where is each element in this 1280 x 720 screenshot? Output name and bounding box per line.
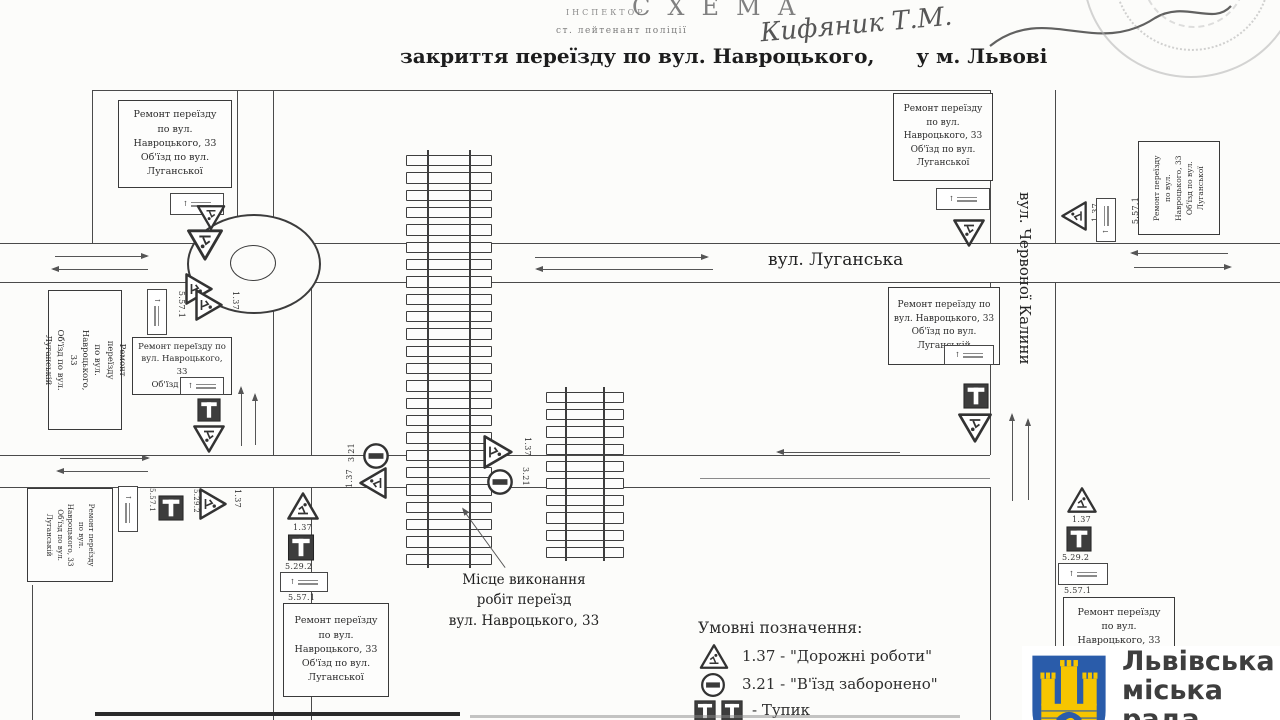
sign-dead-end-icon [196, 398, 222, 422]
railroad-sleeper [406, 554, 492, 565]
sign-info-icon: ↑ [280, 572, 328, 592]
direction-arrow [1012, 415, 1013, 501]
lviv-coat-of-arms-icon [1028, 652, 1110, 720]
direction-arrow [255, 395, 256, 445]
legend-item: 3.21 - "В'їзд заборонено" [742, 675, 938, 693]
sign-road-works-icon [194, 288, 224, 322]
railroad-sleeper [406, 172, 492, 183]
railroad-sleeper [546, 426, 624, 437]
sign-code-label: 1.37 [345, 469, 354, 488]
sign-code-label: 5.57.1 [1131, 197, 1140, 224]
direction-arrow [241, 388, 242, 446]
logo-text: Львівська міська рада [1122, 648, 1275, 720]
detour-notice-box: Ремонт переїзду по вул. Навроцького, 33 … [893, 93, 993, 181]
sign-info-icon: ↑ [1096, 198, 1116, 242]
street-label-luhanska: вул. Луганська [768, 250, 903, 270]
direction-arrow [778, 452, 900, 453]
sign-road-works-icon [699, 643, 729, 670]
railroad-sleeper [406, 190, 492, 201]
railroad-sleeper [406, 502, 492, 513]
railroad-sleeper [406, 328, 492, 339]
direction-arrow [60, 458, 148, 459]
direction-arrow [1028, 420, 1029, 500]
scanned-traffic-scheme: ІНСПЕКТОР СХЕМА ст. лейтенант поліції Ки… [0, 0, 1280, 720]
railroad-sleeper [406, 259, 492, 270]
worksite-callout: Місце виконання робіт переїзд вул. Навро… [428, 570, 620, 631]
sign-road-works-icon [358, 466, 388, 500]
sign-info-icon: ↑ [180, 377, 224, 395]
railroad-sleeper [406, 432, 492, 443]
direction-arrow [1132, 253, 1228, 254]
logo-line: Львівська [1122, 648, 1275, 677]
railroad-sleeper [406, 363, 492, 374]
railroad-sleeper [406, 415, 492, 426]
railroad-sleeper [406, 450, 492, 461]
railroad-sleeper [546, 495, 624, 506]
sign-code-label: 5.57.1 [148, 488, 156, 512]
railroad-sleeper [546, 444, 624, 455]
sign-road-works-icon [186, 228, 224, 262]
road-edge-line [311, 282, 312, 455]
railroad-sleeper [546, 461, 624, 472]
sign-code-label: 1.37 [1072, 515, 1091, 524]
sign-road-works-icon [482, 434, 514, 470]
up-arrow: ↑ [290, 578, 296, 586]
sign-code-label: 3.21 [347, 443, 356, 462]
logo-line: рада [1122, 706, 1275, 720]
road-edge-line [92, 90, 990, 91]
railroad-sleeper [406, 207, 492, 218]
up-arrow: ↑ [949, 195, 955, 203]
legend-title: Умовні позначення: [698, 619, 862, 637]
railroad-sleeper [406, 242, 492, 253]
road-edge-line [990, 487, 991, 720]
sign-road-works-icon [286, 491, 320, 521]
sign-code-label: 5.29.2 [285, 562, 312, 571]
railroad-sleeper [406, 346, 492, 357]
railroad-sleeper [546, 547, 624, 558]
sign-road-works-icon [196, 204, 226, 231]
sign-dead-end-icon [286, 534, 316, 561]
detour-notice-box: Ремонт переїзду по вул. Навроцького, 33 … [27, 488, 113, 582]
up-arrow: ↑ [1069, 570, 1075, 578]
sign-info-icon: ↑ [1058, 563, 1108, 585]
railroad-sleeper [406, 311, 492, 322]
lviv-city-council-logo: Львівська міська рада [1022, 646, 1280, 720]
detour-notice-text: Ремонт переїзду по вул. Навроцького, 33 … [1152, 150, 1206, 226]
railroad-track-main [406, 153, 492, 565]
railroad-sleeper [406, 224, 492, 235]
detour-notice-box: Ремонт переїзду по вул. Навроцького, 33 … [283, 603, 389, 697]
detour-notice-box: Ремонт переїзду по вул. Навроцького, 33 … [48, 290, 122, 430]
up-arrow: ↑ [153, 298, 161, 304]
railroad-sleeper [406, 276, 492, 287]
page-title: закриття переїзду по вул. Навроцького, у… [400, 44, 1047, 68]
detour-notice-text: Ремонт переїзду по вул. Навроцького, 33 … [42, 326, 128, 394]
railroad-sleeper [406, 519, 492, 530]
sign-no-entry-icon [700, 672, 726, 698]
rank-line: ст. лейтенант поліції [556, 26, 687, 36]
sign-info-icon: ↑ [944, 345, 994, 365]
road-edge-line [92, 90, 93, 243]
street-label-chervonoi-kalyny: вул. Червоної Калини [1016, 192, 1034, 412]
direction-arrow [535, 257, 707, 258]
railroad-sleeper [406, 155, 492, 166]
sign-code-label: 5.57.1 [288, 593, 315, 602]
railroad-sleeper [406, 294, 492, 305]
logo-line: міська [1122, 677, 1275, 706]
railroad-sleeper [546, 530, 624, 541]
road-edge-line [700, 478, 990, 479]
sign-road-works-icon [952, 218, 986, 248]
sign-info-icon: ↑ [147, 289, 167, 335]
detour-notice-text: Ремонт переїзду по вул. Навроцького, 33 … [44, 495, 96, 575]
detour-notice-box: Ремонт переїзду по вул. Навроцького, 33 … [118, 100, 232, 188]
scan-artifact [470, 715, 960, 718]
sign-road-works-icon [1066, 486, 1098, 514]
up-arrow: ↑ [188, 382, 194, 390]
road-edge-line [32, 585, 33, 720]
sign-code-label: 1.37 [523, 437, 532, 456]
railroad-sleeper [406, 536, 492, 547]
road-edge-line [273, 296, 274, 455]
sign-code-label: 1.37 [231, 291, 240, 310]
sign-code-label: 5.57.1 [1064, 586, 1091, 595]
sign-info-icon: ↑ [118, 486, 138, 532]
up-arrow: ↑ [1102, 229, 1110, 235]
direction-arrow [53, 269, 148, 270]
railroad-sleeper [406, 467, 492, 478]
direction-arrow [537, 269, 713, 270]
sign-code-label: 3.21 [521, 467, 530, 486]
railroad-sleeper [406, 398, 492, 409]
sign-dead-end-icon [1064, 526, 1094, 552]
sign-code-label: 1.37 [293, 523, 312, 532]
direction-arrow [58, 471, 148, 472]
sign-code-label: 5.29.2 [1062, 553, 1089, 562]
sign-dead-end-icon [962, 383, 990, 409]
road-edge-line [273, 487, 274, 720]
scan-artifact [95, 712, 460, 716]
railroad-track-branch [546, 390, 624, 558]
railroad-sleeper [546, 478, 624, 489]
sign-dead-end-icon [158, 495, 184, 521]
road-edge-line [273, 90, 274, 230]
sign-code-label: 1.37 [233, 489, 242, 508]
road-edge-line [1055, 90, 1056, 243]
railroad-sleeper [406, 380, 492, 391]
legend-item: 1.37 - "Дорожні роботи" [742, 647, 932, 665]
sign-road-works-icon [1060, 200, 1088, 232]
direction-arrow [55, 256, 147, 257]
sign-code-label: 5.57.1 [177, 291, 186, 318]
sign-info-icon: ↑ [936, 188, 990, 210]
up-arrow: ↑ [955, 351, 961, 359]
sign-no-entry-icon [486, 468, 514, 496]
detour-notice-box: Ремонт переїзду по вул. Навроцького, 33 … [1138, 141, 1220, 235]
railroad-sleeper [406, 484, 492, 495]
railroad-sleeper [546, 409, 624, 420]
up-arrow: ↑ [124, 495, 132, 501]
up-arrow: ↑ [183, 200, 189, 208]
railroad-sleeper [546, 392, 624, 403]
sign-road-works-icon [957, 412, 993, 444]
railroad-sleeper [546, 512, 624, 523]
sign-road-works-icon [192, 424, 226, 454]
roundabout [230, 245, 276, 281]
direction-arrow [1134, 267, 1230, 268]
sign-road-works-icon [198, 487, 228, 521]
